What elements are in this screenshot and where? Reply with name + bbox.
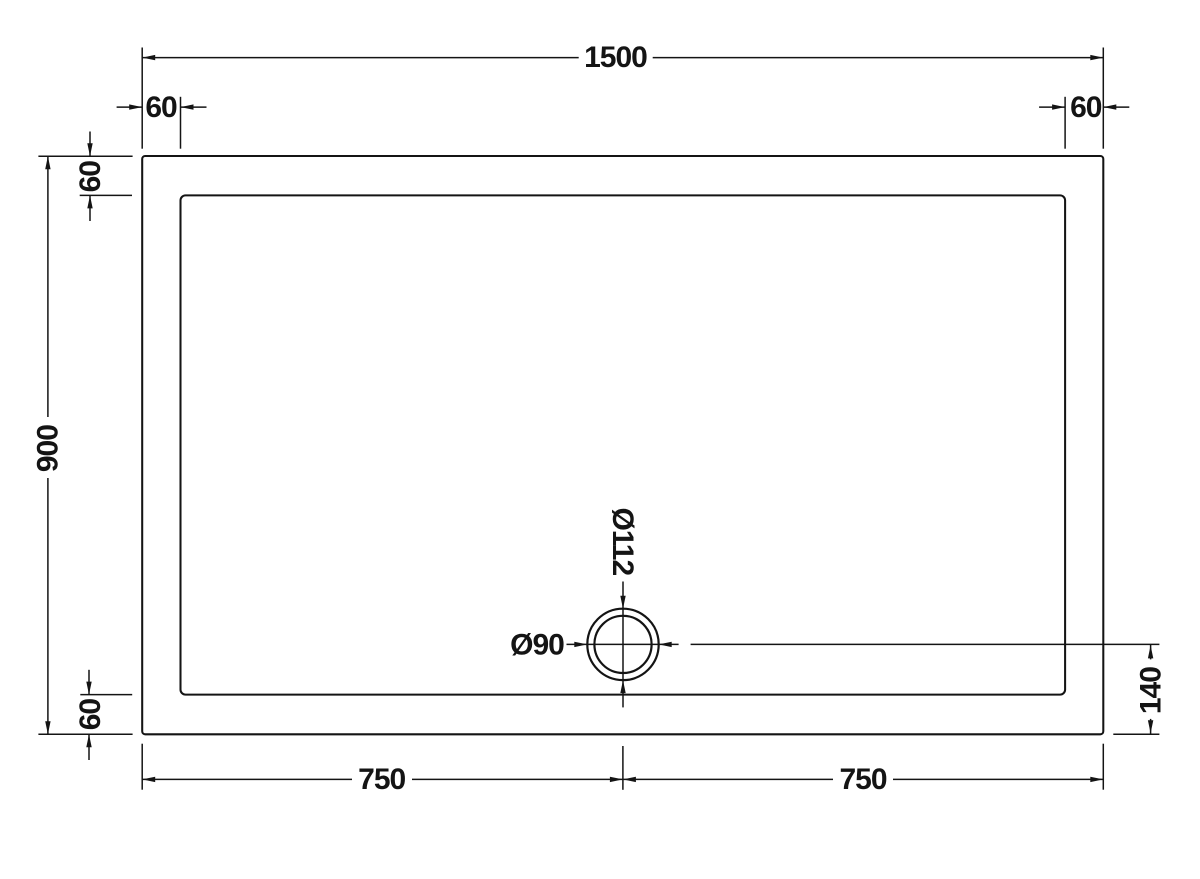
svg-text:60: 60 [1070, 91, 1102, 124]
svg-text:Ø112: Ø112 [606, 507, 639, 575]
svg-text:60: 60 [145, 91, 177, 124]
svg-text:1500: 1500 [584, 41, 647, 74]
svg-text:Ø90: Ø90 [510, 629, 564, 662]
svg-text:750: 750 [358, 763, 405, 796]
svg-text:140: 140 [1135, 667, 1168, 714]
svg-text:750: 750 [839, 763, 886, 796]
svg-text:60: 60 [74, 699, 107, 731]
svg-text:60: 60 [74, 161, 107, 193]
svg-text:900: 900 [31, 425, 64, 472]
